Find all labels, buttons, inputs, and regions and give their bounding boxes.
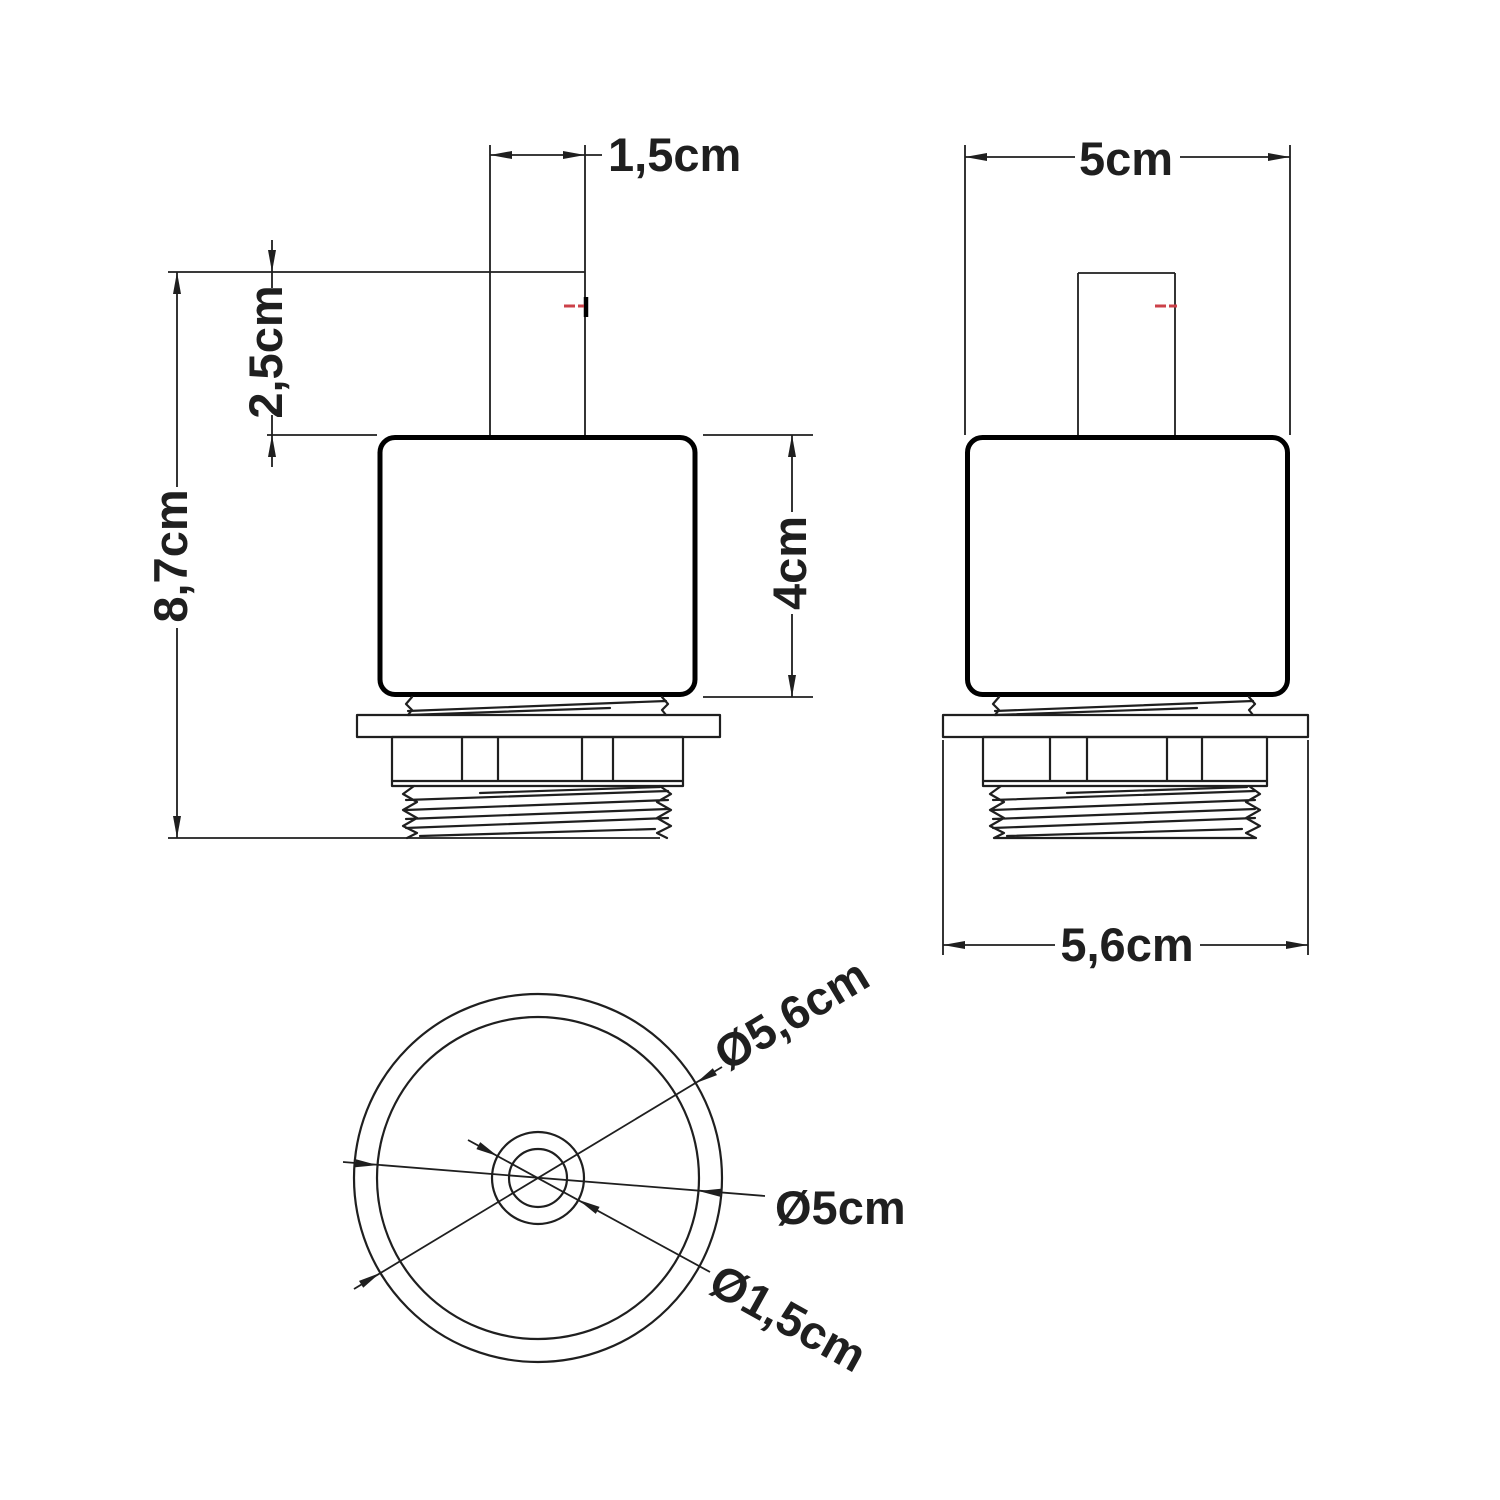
dim-label-body-height: 4cm [763, 516, 816, 610]
front-thread [403, 786, 671, 838]
technical-drawing: 1,5cm 2,5cm 8,7cm 4cm [0, 0, 1500, 1500]
dimension-arrow [490, 151, 512, 159]
side-view: 5cm 5,6cm [943, 132, 1308, 971]
side-thread-transition [993, 697, 1255, 715]
side-body-outline [968, 438, 1288, 695]
front-hex-nut [392, 737, 683, 786]
dimension-arrow [788, 675, 796, 697]
side-thread [990, 786, 1260, 838]
dim-label-total-height: 8,7cm [144, 489, 197, 622]
dimension-arrow [355, 1159, 377, 1167]
dimension-arrow [268, 435, 276, 457]
front-thread-transition [406, 697, 668, 715]
side-stem-outline [1078, 273, 1175, 435]
dimension-arrow [476, 1142, 497, 1156]
dimension-arrow [563, 151, 585, 159]
front-view: 1,5cm 2,5cm 8,7cm 4cm [144, 128, 816, 838]
dimension-arrow [1268, 153, 1290, 161]
dimension-arrow [696, 1068, 717, 1083]
front-stem-outline [168, 145, 585, 435]
dim-label-stem-diameter: Ø1,5cm [701, 1253, 875, 1382]
top-view: Ø5,6cm Ø5cm Ø1,5cm [343, 948, 906, 1382]
dim-label-flange-width: 5,6cm [1060, 918, 1193, 971]
drawing-svg: 1,5cm 2,5cm 8,7cm 4cm [0, 0, 1500, 1500]
front-flange-plate [357, 715, 720, 737]
dim-label-body-diameter: Ø5cm [775, 1181, 906, 1234]
dimension-arrow [173, 272, 181, 294]
dimension-arrow [173, 816, 181, 838]
dimension-arrow [1286, 941, 1308, 949]
front-body-outline [380, 438, 695, 695]
dimension-arrow [788, 435, 796, 457]
side-dim-body-width-line [965, 145, 1290, 435]
side-hex-nut [983, 737, 1267, 786]
dim-label-stem-width: 1,5cm [608, 128, 741, 181]
dimension-arrow [268, 250, 276, 272]
dimension-arrow [359, 1273, 380, 1288]
dimension-arrow [699, 1189, 721, 1197]
side-flange-plate [943, 715, 1308, 737]
dim-label-flange-diameter: Ø5,6cm [705, 948, 878, 1081]
dim-label-stem-height: 2,5cm [239, 285, 292, 418]
dimension-arrow [965, 153, 987, 161]
dimension-arrow [578, 1200, 599, 1214]
dim-label-body-width: 5cm [1079, 132, 1173, 185]
dimension-arrow [943, 941, 965, 949]
